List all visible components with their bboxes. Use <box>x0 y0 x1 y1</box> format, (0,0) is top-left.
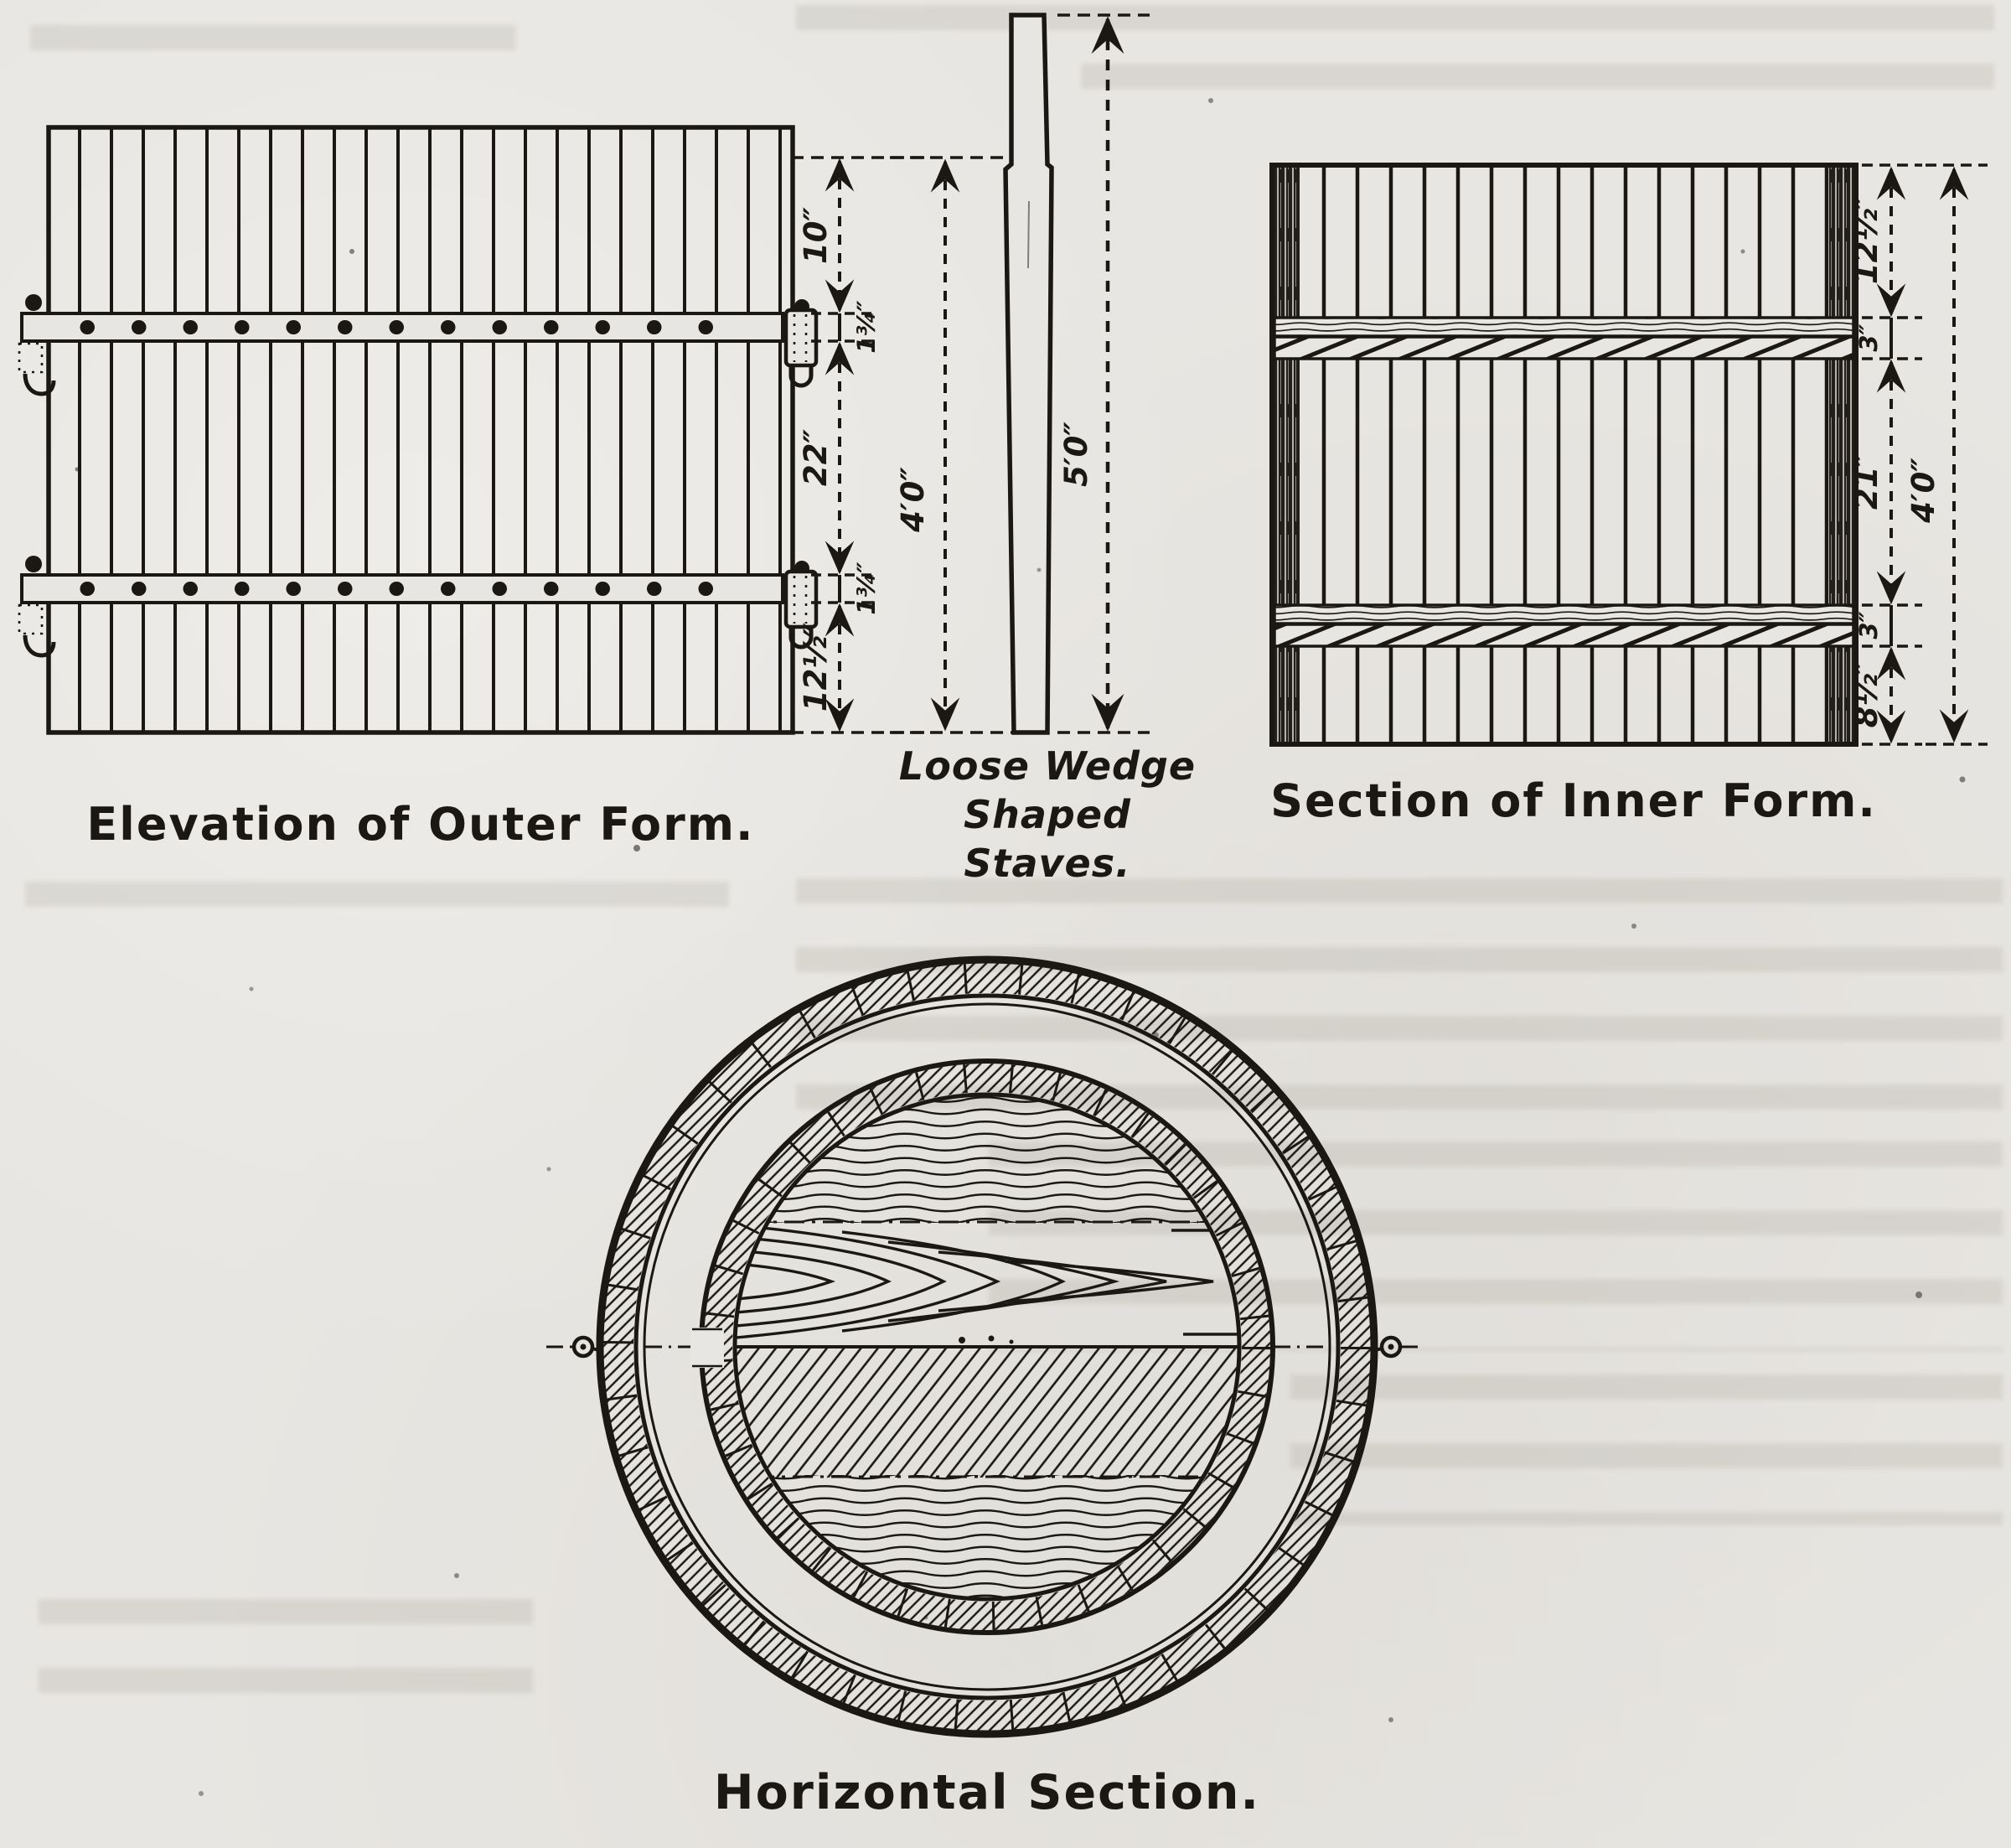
stave-overall-dimension <box>1057 15 1150 732</box>
inner-form-staves <box>1272 165 1856 744</box>
upper-band-lath <box>1274 318 1853 336</box>
dim-label-form-height: 4′0″ <box>895 467 931 533</box>
stave-outline <box>1005 15 1052 732</box>
dim-label-inner-top: 12½″ <box>1848 194 1884 284</box>
dim-label-inner-bottom: 8½″ <box>1848 660 1884 727</box>
figure-canvas: 10″ 1¾″ 22″ 1¾″ 12½″ 4′0″ Elevation of O… <box>0 0 2011 1848</box>
dim-label-inner-band-lower: 3″ <box>1854 611 1883 639</box>
stave-note-line1: Loose Wedge <box>899 743 1196 789</box>
dim-label-upper-batten: 1¾″ <box>852 300 881 353</box>
dim-label-inner-middle: 21″ <box>1848 453 1884 510</box>
dim-label-bottom-segment: 12½″ <box>798 622 834 712</box>
lower-band-lath <box>1274 605 1853 624</box>
lower-band-wale <box>1274 624 1853 646</box>
caption-horizontal-section: Horizontal Section. <box>714 1765 1260 1820</box>
caption-inner-form: Section of Inner Form. <box>1270 774 1877 827</box>
chevron-grain <box>736 1225 1238 1338</box>
dim-label-inner-height: 4′0″ <box>1905 458 1941 524</box>
dim-label-stave-length: 5′0″ <box>1058 422 1094 487</box>
stave-note-line3: Staves. <box>964 841 1130 886</box>
horizontal-section: Horizontal Section. <box>546 960 1424 1820</box>
outer-form-elevation: 10″ 1¾″ 22″ 1¾″ 12½″ 4′0″ Elevation of O… <box>19 127 1034 851</box>
dim-label-middle-segment: 22″ <box>798 429 834 486</box>
dim-label-top-segment: 10″ <box>798 207 834 264</box>
inner-form-section: 12½″ 3″ 21″ 3″ 8½″ 4′0″ Section of Inner… <box>1270 165 1988 827</box>
upper-band-wale <box>1274 337 1853 359</box>
caption-outer-form: Elevation of Outer Form. <box>86 798 754 851</box>
inner-form-overall-dimension <box>1926 165 1988 744</box>
left-edge-post <box>1274 168 1300 742</box>
scanned-page: 10″ 1¾″ 22″ 1¾″ 12½″ 4′0″ Elevation of O… <box>0 0 2011 1848</box>
outer-form-staves <box>49 127 793 732</box>
dim-label-inner-band-upper: 3″ <box>1854 324 1883 351</box>
wedge-stave: 5′0″ Loose Wedge Shaped Staves. <box>899 15 1196 886</box>
stave-note-line2: Shaped <box>964 792 1131 837</box>
wedge-stave-notch <box>690 1328 724 1368</box>
dim-label-lower-batten: 1¾″ <box>852 562 881 614</box>
